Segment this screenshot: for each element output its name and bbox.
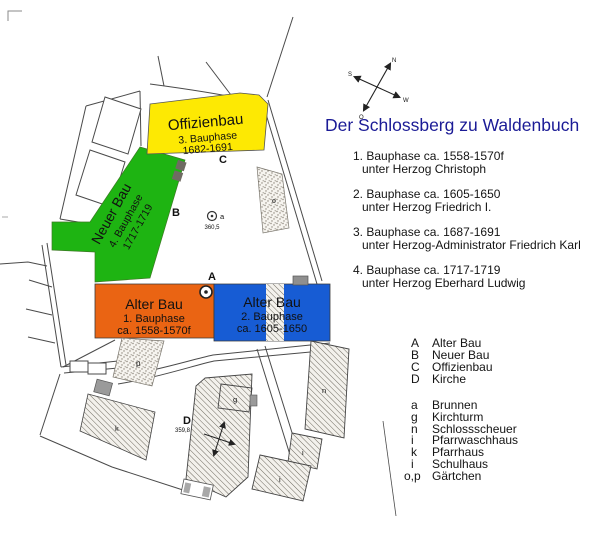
compass-n: N (392, 58, 396, 64)
alter-bau-2-years: ca. 1605-1650 (237, 323, 307, 335)
church-elevation: 359,8 (175, 428, 191, 434)
compass-w: W (403, 98, 409, 104)
well-elevation: 360,5 (204, 225, 220, 231)
alter-bau-2-phase: 2. Bauphase (241, 311, 303, 323)
compass-rose: N O S W (348, 58, 409, 121)
label-g: g (233, 395, 237, 404)
phase-item-4: 4. Bauphase ca. 1717-1719 unter Herzog E… (353, 264, 525, 290)
phase-2-line2: unter Herzog Friedrich I. (362, 201, 500, 214)
label-n: n (322, 386, 326, 395)
label-D: D (183, 415, 191, 427)
garden-o: o (257, 167, 289, 233)
legend-name: Kirche (432, 372, 466, 386)
compass-s: S (348, 72, 352, 78)
label-o: o (272, 198, 276, 205)
phase-3-line2: unter Herzog-Administrator Friedrich Kar… (362, 239, 581, 252)
label-a: a (220, 212, 225, 221)
phase-item-2: 2. Bauphase ca. 1605-1650 unter Herzog F… (353, 188, 500, 214)
alter-bau-1-building: Alter Bau 1. Bauphase ca. 1558-1570f (95, 284, 214, 338)
alter-bau-1-name: Alter Bau (125, 296, 183, 312)
legend-key: o,p (404, 469, 432, 483)
alter-bau-1-years: ca. 1558-1570f (117, 325, 191, 337)
schlossscheuer-building: n (305, 341, 349, 438)
label-A: A (208, 271, 216, 283)
label-C: C (219, 154, 227, 166)
entrance-block (293, 276, 308, 285)
well-at-alter-bau (200, 286, 212, 298)
garden-p: p (113, 338, 164, 386)
room-outline (92, 97, 141, 154)
legend-row-op: o,pGärtchen (404, 469, 481, 483)
alter-bau-2-building: Alter Bau 2. Bauphase ca. 1605-1650 (214, 276, 330, 341)
scanned-map-page: Neuer Bau 4. Bauphase 1717-1719 B Offizi… (0, 0, 600, 538)
pfarrhaus-building: k (80, 379, 155, 460)
roadside-buildings (70, 361, 106, 374)
phase-1-line2: unter Herzog Christoph (362, 163, 504, 176)
brunnen-marker: a 360,5 (204, 212, 225, 232)
label-k: k (115, 424, 119, 433)
alter-bau-2-name: Alter Bau (243, 294, 301, 310)
legend-name: Gärtchen (432, 469, 481, 483)
phase-item-1: 1. Bauphase ca. 1558-1570f unter Herzog … (353, 150, 504, 176)
alter-bau-1-phase: 1. Bauphase (123, 313, 185, 325)
legend-row-D: DKirche (411, 372, 466, 386)
phase-item-3: 3. Bauphase ca. 1687-1691 unter Herzog-A… (353, 226, 581, 252)
crop-mark (8, 11, 22, 21)
church-building: g D 359,8 (175, 374, 257, 500)
legend-key: D (411, 372, 432, 386)
label-p: p (136, 359, 141, 368)
label-B: B (172, 207, 180, 219)
page-title: Der Schlossberg zu Waldenbuch (325, 115, 579, 136)
phase-4-line2: unter Herzog Eberhard Ludwig (362, 277, 525, 290)
tower-annex (250, 395, 257, 406)
